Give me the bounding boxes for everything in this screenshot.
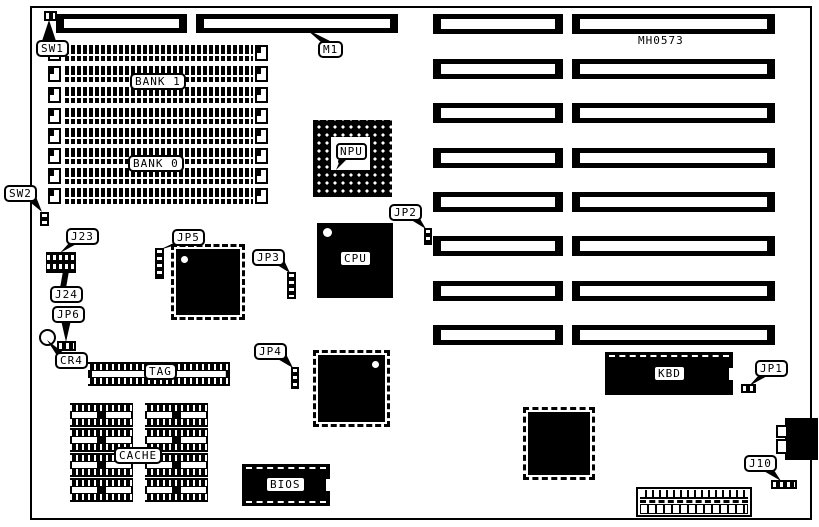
cache-socket [145,403,208,427]
isa-slot [433,59,563,79]
pin1-dot-icon [181,256,188,263]
cr4-battery [39,329,56,346]
label-m1: M1 [318,41,343,58]
din-tab [776,439,788,454]
isa-slot [572,59,775,79]
isa-slot [433,14,563,34]
isa-slot [572,103,775,123]
sw1-switch [44,11,57,21]
label-cache: CACHE [114,447,162,464]
label-tag: TAG [144,363,177,380]
pin1-dot-icon [323,228,332,237]
label-bank0: BANK 0 [128,155,184,172]
isa-slot [572,192,775,212]
label-bios: BIOS [266,477,305,492]
simm-socket [48,45,268,61]
label-jp6: JP6 [52,306,85,323]
isa-slot [433,281,563,301]
chip-notch [729,368,734,380]
simm-socket [48,188,268,204]
isa-slot [572,14,775,34]
pin1-dot-icon [372,361,379,368]
jp2-jumper [424,228,432,245]
label-sw1: SW1 [36,40,69,57]
jp4-jumper [291,367,299,389]
qfp-chip [528,412,590,475]
label-sw2: SW2 [4,185,37,202]
isa-slot [433,236,563,256]
simm-socket [48,108,268,124]
label-j23: J23 [66,228,99,245]
chip-notch [326,479,331,491]
label-kbd: KBD [654,366,685,381]
keyboard-din-connector [785,418,818,460]
memory-slot [56,14,187,33]
jp1-jumper [741,384,756,393]
isa-slot [572,281,775,301]
isa-slot [433,148,563,168]
isa-slot [433,192,563,212]
board-id: MH0573 [638,34,684,47]
isa-slot [433,103,563,123]
cache-socket [145,478,208,502]
label-jp2: JP2 [389,204,422,221]
isa-slot [572,148,775,168]
label-bank1: BANK 1 [130,73,186,90]
label-j24: J24 [50,286,83,303]
label-j10: J10 [744,455,777,472]
j10-connector [771,480,797,489]
label-jp4: JP4 [254,343,287,360]
label-npu: NPU [336,143,367,160]
label-cr4: CR4 [55,352,88,369]
j23-j24-header [46,252,76,273]
motherboard-diagram: SW1 SW2 M1 MH0573 BANK 1 BANK 0 J23 J24 … [0,0,819,527]
isa-slot [572,236,775,256]
jp6-jumper [57,341,76,351]
jp3-jumper [287,272,296,299]
qfp-chip [176,249,240,315]
qfp-chip [318,355,385,422]
isa-slot [433,325,563,345]
power-connector [636,487,752,517]
label-jp5: JP5 [172,229,205,246]
label-jp1: JP1 [755,360,788,377]
jp5-jumper [155,248,164,279]
cache-socket [70,478,133,502]
label-jp3: JP3 [252,249,285,266]
cache-socket [70,403,133,427]
simm-socket [48,128,268,144]
isa-slot [572,325,775,345]
din-tab [776,425,788,438]
label-cpu: CPU [340,251,371,266]
m1-slot [196,14,398,33]
sw2-switch [40,212,49,226]
